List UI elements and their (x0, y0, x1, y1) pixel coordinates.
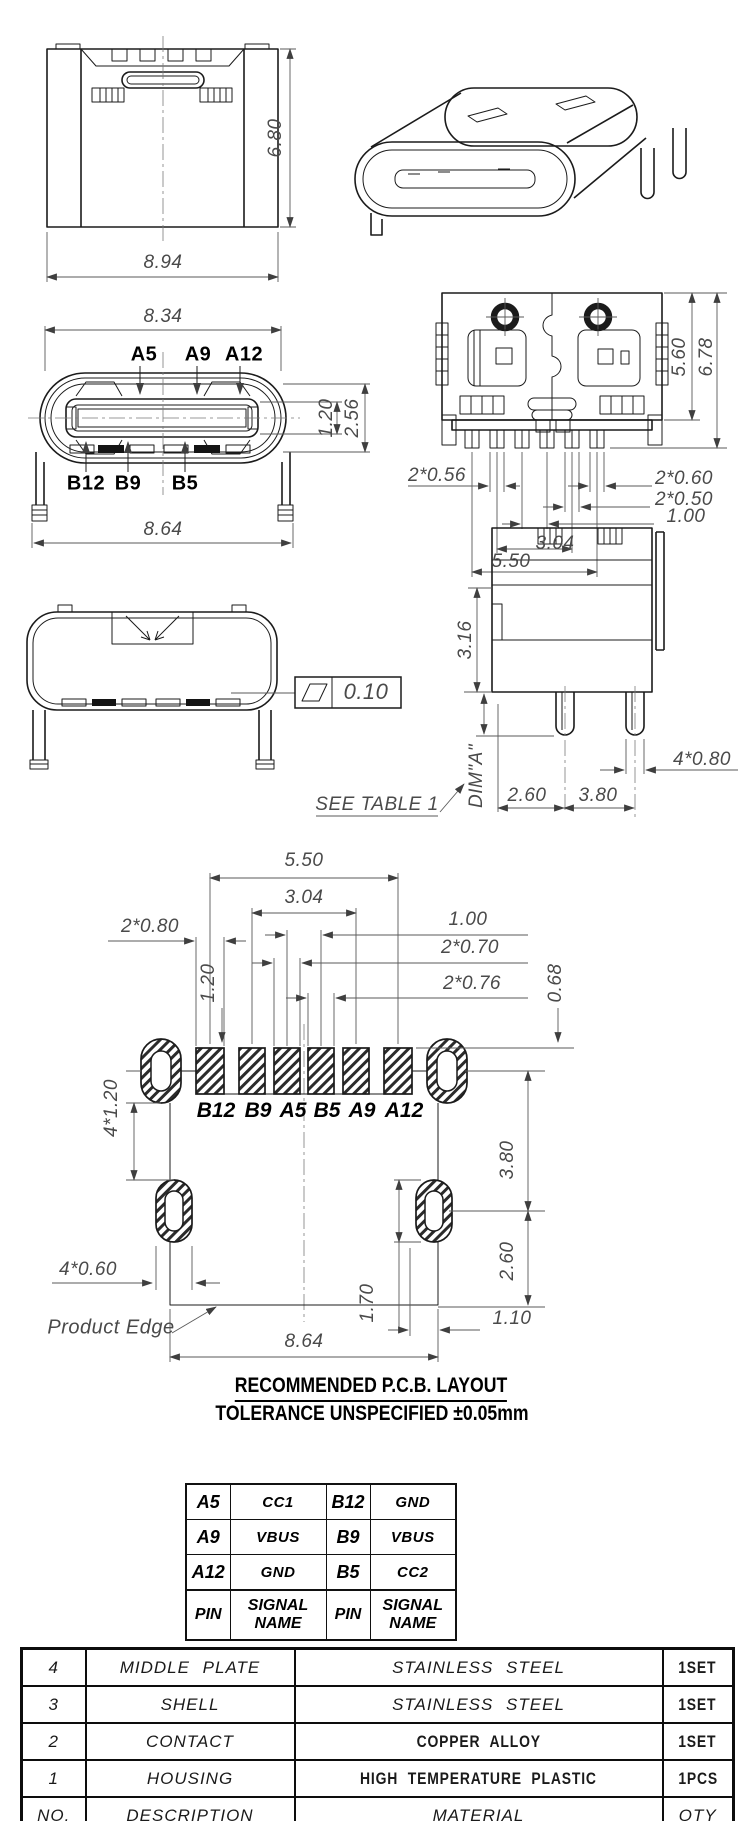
pcb-dim-hole-v-pitch: 3.80 (497, 1141, 519, 1180)
pcb-pad-label-b5: B5 (314, 1099, 341, 1123)
bom-description-cell: CONTACT (86, 1723, 295, 1760)
bom-qty-cell: 1PCS (663, 1760, 734, 1797)
pcb-dim-edge-offset: 1.10 (493, 1308, 532, 1330)
bom-description-cell: SHELL (86, 1686, 295, 1723)
bom-qty-value: 1SET (679, 1695, 717, 1715)
bom-no-cell: 4 (22, 1649, 86, 1687)
flatness-value: 0.10 (344, 679, 389, 705)
pcb-layout-title: RECOMMENDED P.C.B. LAYOUT (235, 1374, 507, 1402)
bom-row: 2 CONTACT COPPER ALLOY 1SET (22, 1723, 734, 1760)
pcb-dim-hole-edge-offset: 2.60 (497, 1242, 519, 1281)
signal-cell: CC2 (370, 1555, 456, 1591)
dim-total-height: 6.78 (696, 338, 718, 377)
bom-no-header: NO. (22, 1797, 86, 1821)
dim-pin-pitch-center: 1.00 (667, 506, 706, 528)
bom-material-cell: COPPER ALLOY (295, 1723, 663, 1760)
pin-signal-table: A5 CC1 B12 GND A9 VBUS B9 VBUS A12 GND B… (185, 1483, 457, 1641)
dim-leg-width: 4*0.80 (673, 749, 731, 771)
bom-table: 4 MIDDLE PLATE STAINLESS STEEL 1SET 3 SH… (20, 1647, 735, 1821)
pin-label-b12: B12 (67, 473, 105, 496)
bom-no-cell: 1 (22, 1760, 86, 1797)
bom-no-cell: 3 (22, 1686, 86, 1723)
bom-description-cell: MIDDLE PLATE (86, 1649, 295, 1687)
pin-cell: A5 (186, 1484, 230, 1520)
bom-qty-header: QTY (663, 1797, 734, 1821)
pin-label-b9: B9 (115, 473, 142, 496)
bom-material-header: MATERIAL (295, 1797, 663, 1821)
dim-side-height: 3.16 (455, 621, 477, 660)
pcb-dim-pad-span-mid: 3.04 (285, 887, 324, 909)
see-table-note: SEE TABLE 1 (315, 794, 438, 816)
dim-pin-span-mid: 3.04 (536, 533, 575, 555)
bom-qty-cell: 1SET (663, 1686, 734, 1723)
pcb-dim-pad-span: 5.50 (285, 850, 324, 872)
pin-cell: A9 (186, 1520, 230, 1555)
dim-rear-width: 8.94 (144, 252, 183, 274)
pin-label-b5: B5 (172, 473, 199, 496)
bom-qty-cell: 1SET (663, 1723, 734, 1760)
pcb-pad-label-b12: B12 (197, 1099, 236, 1123)
pin-header-cell: PIN (186, 1590, 230, 1640)
pcb-dim-hole-width: 4*0.60 (59, 1259, 117, 1281)
engineering-drawing-sheet: 6.80 8.94 8.34 A5 A9 A12 B12 B9 B5 1.20 … (0, 0, 750, 1821)
dim-front-width-top: 8.34 (144, 306, 183, 328)
bom-material-value: HIGH TEMPERATURE PLASTIC (360, 1769, 597, 1789)
bom-qty-value: 1PCS (678, 1769, 718, 1789)
pcb-pad-label-a9: A9 (349, 1099, 376, 1123)
pcb-pad-label-b9: B9 (245, 1099, 272, 1123)
pcb-dim-pad-pitch-center: 1.00 (449, 909, 488, 931)
pin-label-a12: A12 (225, 344, 263, 367)
signal-cell: GND (370, 1484, 456, 1520)
signal-header-cell: SIGNAL NAME (370, 1590, 456, 1640)
isometric-view (355, 88, 686, 235)
bom-no-cell: 2 (22, 1723, 86, 1760)
pcb-pad-label-a12: A12 (385, 1099, 424, 1123)
pin-table-header-row: PIN SIGNAL NAME PIN SIGNAL NAME (186, 1590, 456, 1640)
bom-description-cell: HOUSING (86, 1760, 295, 1797)
product-edge-label: Product Edge (47, 1317, 174, 1340)
pin-table-row: A12 GND B5 CC2 (186, 1555, 456, 1591)
pcb-pad-label-a5: A5 (280, 1099, 307, 1123)
pcb-dim-board-width: 8.64 (285, 1331, 324, 1353)
rear-view (47, 36, 296, 282)
pcb-dim-offset-right: 0.68 (545, 964, 567, 1003)
pcb-dim-slot-height: 1.70 (357, 1284, 379, 1323)
signal-cell: VBUS (370, 1520, 456, 1555)
bom-qty-value: 1SET (679, 1658, 717, 1678)
signal-header-cell: SIGNAL NAME (230, 1590, 326, 1640)
dim-front-width-bottom: 8.64 (144, 519, 183, 541)
bom-row: 4 MIDDLE PLATE STAINLESS STEEL 1SET (22, 1649, 734, 1687)
bom-material-cell: STAINLESS STEEL (295, 1686, 663, 1723)
bom-row: 3 SHELL STAINLESS STEEL 1SET (22, 1686, 734, 1723)
bom-description-header: DESCRIPTION (86, 1797, 295, 1821)
signal-cell: CC1 (230, 1484, 326, 1520)
shell-top-view (27, 605, 464, 816)
pin-table-row: A9 VBUS B9 VBUS (186, 1520, 456, 1555)
dim-rear-height: 6.80 (265, 119, 287, 158)
dim-pin-width-outer: 2*0.56 (408, 465, 466, 487)
dim-pin-span: 5.50 (492, 551, 531, 573)
pin-header-cell: PIN (326, 1590, 370, 1640)
tolerance-note: TOLERANCE UNSPECIFIED ±0.05mm (215, 1402, 528, 1426)
pin-cell: B5 (326, 1555, 370, 1591)
dim-pin-width-edge: 2*0.60 (655, 468, 713, 490)
pin-label-a5: A5 (131, 344, 158, 367)
bom-row: 1 HOUSING HIGH TEMPERATURE PLASTIC 1PCS (22, 1760, 734, 1797)
pin-label-a9: A9 (185, 344, 212, 367)
bom-qty-cell: 1SET (663, 1649, 734, 1687)
pin-cell: B9 (326, 1520, 370, 1555)
drawing-canvas (0, 0, 750, 1460)
pcb-dim-offset-left: 1.20 (198, 964, 220, 1003)
dim-leg-offset: 2.60 (508, 785, 547, 807)
pcb-dim-pad-width-a: 2*0.70 (441, 937, 499, 959)
signal-cell: GND (230, 1555, 326, 1591)
pcb-dim-pad-width-edge: 2*0.80 (121, 916, 179, 938)
bom-footer-row: NO. DESCRIPTION MATERIAL QTY (22, 1797, 734, 1821)
pcb-dim-pad-width-b: 2*0.76 (443, 973, 501, 995)
dim-body-height: 5.60 (669, 338, 691, 377)
pin-cell: B12 (326, 1484, 370, 1520)
dim-a-label: DIM"A" (466, 744, 488, 808)
bom-material-cell: STAINLESS STEEL (295, 1649, 663, 1687)
bom-qty-value: 1SET (679, 1732, 717, 1752)
bom-material-value: COPPER ALLOY (416, 1732, 540, 1752)
signal-cell: VBUS (230, 1520, 326, 1555)
pin-cell: A12 (186, 1555, 230, 1591)
dim-leg-pitch: 3.80 (579, 785, 618, 807)
pcb-dim-hole-height: 4*1.20 (101, 1079, 123, 1137)
bom-material-cell: HIGH TEMPERATURE PLASTIC (295, 1760, 663, 1797)
pin-table-row: A5 CC1 B12 GND (186, 1484, 456, 1520)
dim-tongue-thickness: 1.20 (316, 399, 338, 438)
dim-cavity-height: 2.56 (342, 399, 364, 438)
